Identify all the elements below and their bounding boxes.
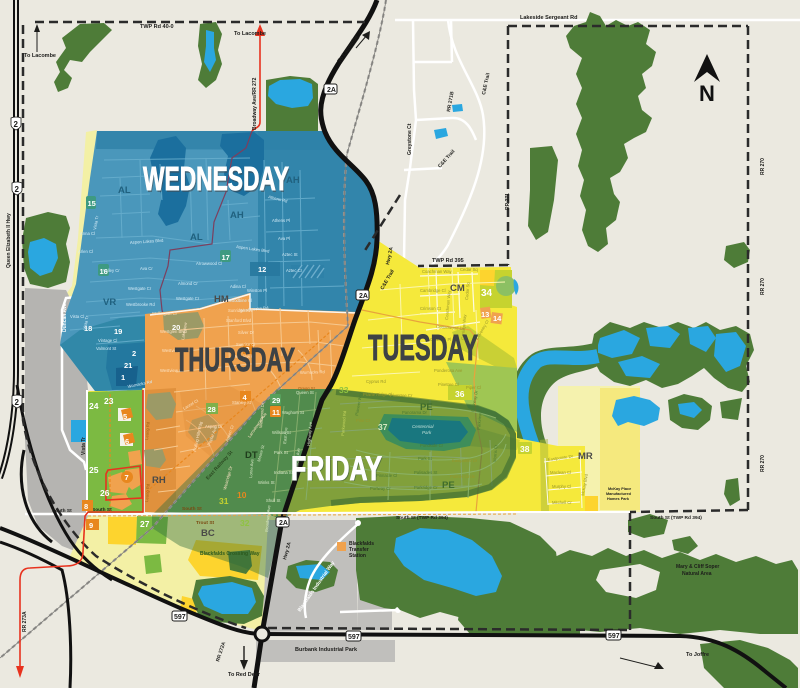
svg-text:7: 7 (125, 473, 129, 482)
svg-text:RR 270: RR 270 (760, 278, 766, 295)
svg-text:Valley Cr: Valley Cr (103, 268, 120, 273)
svg-text:14: 14 (493, 314, 502, 323)
svg-text:Ponderosa Ave: Ponderosa Ave (434, 368, 463, 373)
svg-text:Duncan Ave: Duncan Ave (62, 303, 68, 332)
svg-text:AL: AL (118, 185, 131, 196)
svg-text:TWP Rd 395: TWP Rd 395 (432, 258, 464, 264)
svg-text:AH: AH (230, 210, 244, 221)
svg-text:29: 29 (272, 396, 280, 405)
svg-text:Blackfalds Crossing Way: Blackfalds Crossing Way (200, 551, 260, 557)
svg-text:Piper Cl: Piper Cl (466, 385, 481, 390)
svg-text:CM: CM (450, 283, 465, 294)
svg-text:2: 2 (15, 185, 20, 194)
svg-text:31: 31 (219, 496, 229, 506)
svg-text:Trout St: Trout St (196, 520, 215, 526)
svg-text:Shull St: Shull St (266, 498, 281, 503)
svg-text:Park: Park (422, 430, 432, 435)
svg-text:2: 2 (14, 120, 19, 129)
svg-text:Crimson Ct: Crimson Ct (420, 306, 442, 311)
svg-text:WEDNESDAY: WEDNESDAY (143, 160, 289, 197)
svg-text:Womacks Rd: Womacks Rd (300, 369, 326, 375)
svg-text:TWP Rd 40-0: TWP Rd 40-0 (140, 24, 174, 30)
svg-text:38: 38 (520, 444, 530, 454)
svg-text:To Lacombe: To Lacombe (234, 31, 266, 37)
svg-text:Aztec St: Aztec St (282, 252, 298, 257)
svg-text:Westgate Cr: Westgate Cr (176, 296, 200, 301)
svg-text:PE: PE (442, 480, 455, 491)
svg-text:Queen St: Queen St (296, 390, 315, 395)
svg-text:Arrowwood Cl: Arrowwood Cl (196, 261, 222, 266)
svg-text:5: 5 (123, 412, 127, 421)
svg-text:McKay Place: McKay Place (608, 487, 631, 491)
svg-text:Murphy Cl: Murphy Cl (552, 484, 571, 489)
svg-text:28: 28 (208, 405, 216, 414)
svg-text:Pondside Cr: Pondside Cr (420, 443, 444, 448)
svg-text:2: 2 (15, 398, 20, 407)
svg-text:Maclean Cl: Maclean Cl (550, 470, 571, 475)
svg-text:597: 597 (608, 633, 620, 640)
svg-text:Winks St: Winks St (258, 480, 275, 485)
svg-text:Almond Cr: Almond Cr (178, 281, 198, 286)
svg-text:Vintage Cl: Vintage Cl (98, 338, 117, 343)
svg-text:South St (TWP Rd 394): South St (TWP Rd 394) (650, 515, 702, 521)
svg-text:Park St: Park St (418, 456, 433, 461)
svg-text:2A: 2A (279, 520, 288, 527)
svg-text:Cedar Sq: Cedar Sq (460, 267, 478, 272)
svg-text:15: 15 (88, 199, 96, 208)
svg-text:8: 8 (84, 502, 88, 511)
svg-text:Athens Pl: Athens Pl (272, 218, 290, 223)
svg-text:Centennial: Centennial (412, 424, 435, 429)
svg-text:Willson St: Willson St (272, 430, 291, 435)
svg-text:Aztec Cr: Aztec Cr (286, 268, 303, 273)
svg-text:Plumtree Cr: Plumtree Cr (390, 393, 413, 398)
svg-text:32: 32 (240, 518, 250, 528)
svg-text:Mitchell Cr: Mitchell Cr (552, 500, 572, 505)
svg-text:Westbrooke Rd: Westbrooke Rd (126, 302, 155, 307)
svg-text:RH: RH (152, 475, 166, 486)
svg-text:Burbank Industrial Park: Burbank Industrial Park (295, 647, 358, 653)
svg-text:Silver Dr: Silver Dr (238, 330, 255, 335)
svg-text:33: 33 (339, 385, 349, 395)
svg-text:Woodbine Cl: Woodbine Cl (228, 298, 252, 303)
svg-text:South St: South St (92, 507, 112, 513)
svg-text:Cambridge Cl: Cambridge Cl (420, 288, 446, 293)
svg-text:21: 21 (124, 361, 132, 370)
svg-text:Sunridge Ave: Sunridge Ave (228, 308, 254, 313)
svg-text:Winston Pl: Winston Pl (247, 288, 267, 293)
svg-text:Eastpointe Dr: Eastpointe Dr (452, 458, 478, 463)
svg-text:12: 12 (258, 265, 266, 274)
svg-text:Pine Cr: Pine Cr (356, 418, 371, 423)
svg-text:Palmer Circle: Palmer Circle (450, 474, 476, 479)
svg-text:2A: 2A (359, 293, 368, 300)
svg-text:Lakeside Sergeant Rd: Lakeside Sergeant Rd (520, 15, 577, 21)
svg-text:2A: 2A (327, 87, 336, 94)
svg-text:24: 24 (89, 401, 99, 411)
svg-text:36: 36 (455, 389, 465, 399)
svg-text:Ava Cr: Ava Cr (140, 266, 153, 271)
svg-text:Panorama Dr: Panorama Dr (402, 410, 428, 415)
svg-text:597: 597 (348, 634, 360, 641)
svg-text:Broadway Ave/RR 272: Broadway Ave/RR 272 (252, 77, 258, 130)
svg-text:Homes Park: Homes Park (607, 497, 630, 501)
svg-text:Arlen Cl: Arlen Cl (78, 249, 93, 254)
svg-text:Vista Cl: Vista Cl (70, 314, 84, 319)
svg-text:HM: HM (214, 294, 229, 305)
svg-text:Station: Station (349, 553, 366, 559)
svg-text:10: 10 (237, 490, 247, 500)
svg-text:Westgate Cr: Westgate Cr (128, 286, 152, 291)
svg-text:Prairie Ridge Cl: Prairie Ridge Cl (363, 392, 392, 397)
svg-text:Mary & Cliff Soper: Mary & Cliff Soper (676, 564, 719, 570)
svg-text:South St: South St (52, 508, 72, 514)
svg-text:Natural Area: Natural Area (682, 571, 712, 577)
svg-text:BC: BC (201, 528, 215, 539)
svg-text:1: 1 (121, 373, 125, 382)
svg-text:Wellington Cl: Wellington Cl (152, 311, 177, 316)
svg-text:19: 19 (114, 327, 122, 336)
svg-text:THURSDAY: THURSDAY (175, 341, 295, 378)
svg-text:26: 26 (100, 488, 110, 498)
svg-text:RR 273A: RR 273A (22, 611, 28, 632)
svg-text:23: 23 (104, 396, 114, 406)
svg-text:11: 11 (272, 408, 280, 417)
svg-text:37: 37 (378, 422, 388, 432)
svg-text:Manufactured: Manufactured (606, 492, 632, 496)
svg-text:2: 2 (132, 349, 136, 358)
svg-text:Queen Elizabeth II Hwy: Queen Elizabeth II Hwy (6, 213, 12, 268)
svg-text:MR: MR (578, 451, 593, 462)
svg-text:TUESDAY: TUESDAY (368, 327, 478, 368)
svg-text:Anna Cl: Anna Cl (80, 231, 95, 236)
svg-text:Parkridge Cr: Parkridge Cr (414, 485, 438, 490)
svg-text:25: 25 (89, 465, 99, 475)
svg-text:Stanford Blvd: Stanford Blvd (226, 318, 252, 323)
svg-text:Ava Pl: Ava Pl (278, 236, 290, 241)
svg-text:South St (TWP Rd 394): South St (TWP Rd 394) (396, 515, 448, 521)
svg-text:Pinetree Cl: Pinetree Cl (438, 382, 459, 387)
svg-text:Vista Tr: Vista Tr (81, 437, 87, 455)
svg-text:RR 270: RR 270 (760, 455, 766, 472)
svg-text:VR: VR (103, 297, 116, 308)
svg-text:RR 270: RR 270 (760, 158, 766, 175)
svg-text:9: 9 (89, 521, 93, 530)
svg-text:South St: South St (182, 506, 202, 512)
svg-text:17: 17 (222, 253, 230, 262)
svg-text:Stanley St: Stanley St (232, 400, 252, 405)
svg-text:Park St: Park St (274, 450, 289, 455)
svg-text:Coachman Way: Coachman Way (422, 269, 453, 274)
svg-text:6: 6 (125, 437, 129, 446)
svg-text:34: 34 (481, 288, 493, 299)
svg-text:AL: AL (190, 232, 203, 243)
svg-text:To Joffre: To Joffre (686, 652, 709, 658)
svg-text:Greystone Ct: Greystone Ct (407, 123, 413, 155)
svg-text:To Red Deer: To Red Deer (228, 672, 261, 678)
svg-text:N: N (699, 81, 715, 106)
svg-text:Waghorn St: Waghorn St (282, 410, 305, 415)
svg-text:Palisades St: Palisades St (414, 470, 438, 475)
svg-text:FRIDAY: FRIDAY (291, 450, 382, 488)
svg-text:597: 597 (174, 614, 186, 621)
svg-text:Adina Cl: Adina Cl (230, 284, 246, 289)
svg-text:Cyprus Rd: Cyprus Rd (366, 379, 386, 384)
svg-text:RR 271: RR 271 (505, 193, 511, 210)
svg-text:13: 13 (481, 310, 489, 319)
svg-text:27: 27 (140, 519, 150, 529)
svg-text:To Lacombe: To Lacombe (24, 53, 56, 59)
svg-text:Valmont St: Valmont St (96, 346, 117, 351)
